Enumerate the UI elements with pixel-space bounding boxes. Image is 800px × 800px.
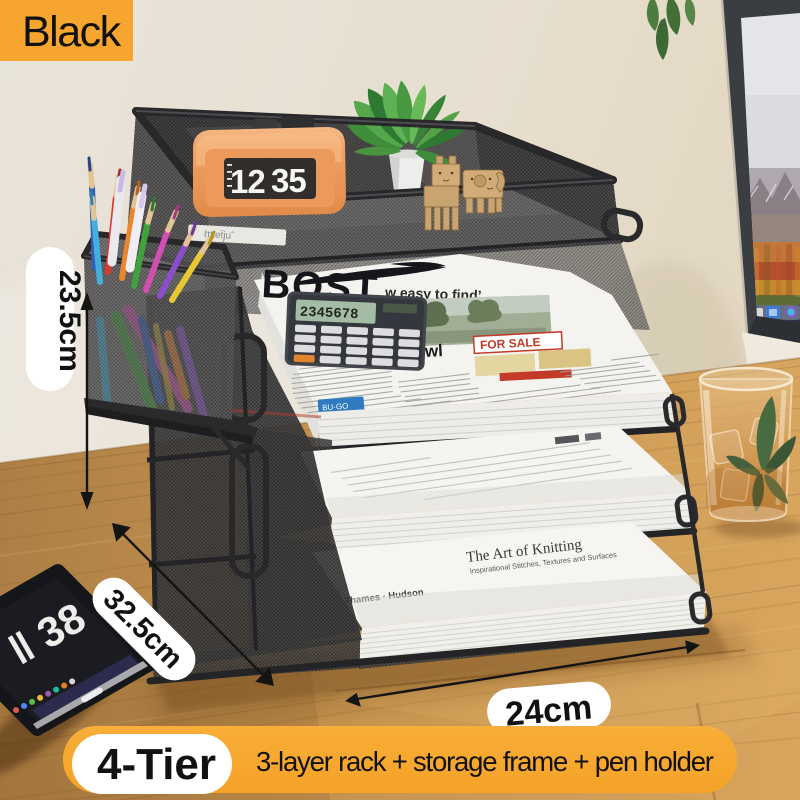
- svg-text:12: 12: [230, 163, 265, 200]
- svg-text:Black: Black: [22, 8, 122, 56]
- svg-text:35: 35: [271, 162, 306, 199]
- svg-text:23.5cm: 23.5cm: [53, 270, 86, 372]
- svg-text:2345678: 2345678: [299, 305, 358, 324]
- svg-text:4-Tier: 4-Tier: [97, 740, 216, 789]
- svg-text:3-layer rack + storage frame +: 3-layer rack + storage frame + pen holde…: [256, 746, 714, 777]
